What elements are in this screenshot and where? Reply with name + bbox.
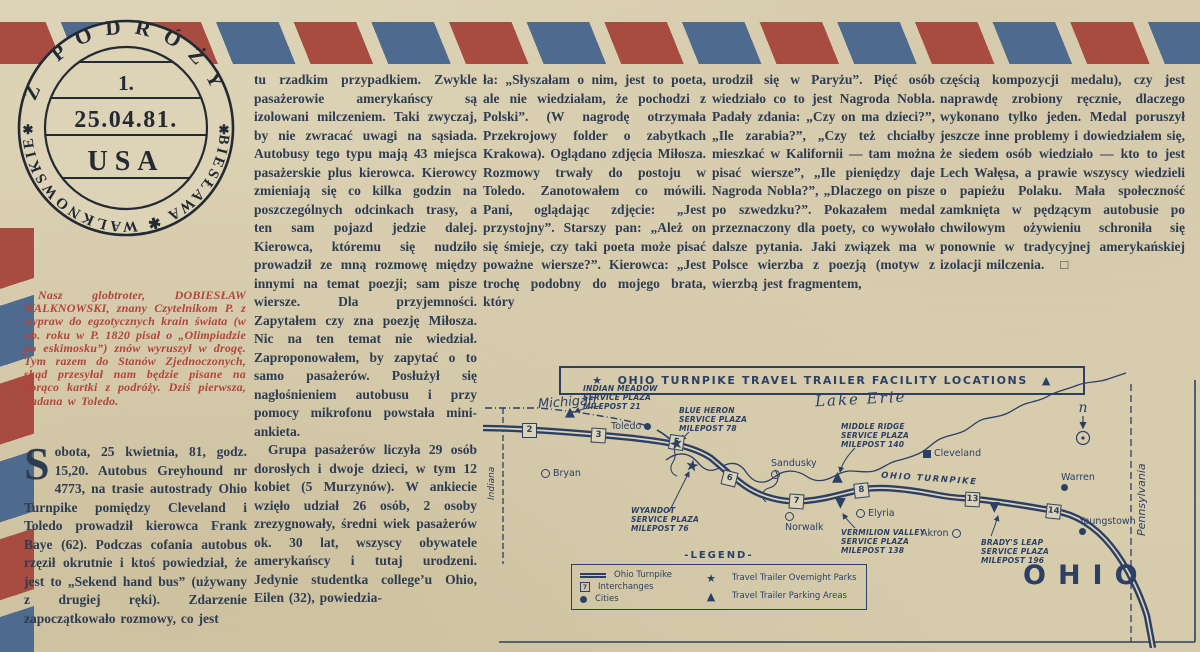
- city-sandusky-label: Sandusky: [771, 458, 817, 469]
- drop-cap: S: [24, 445, 50, 482]
- legend-left-column: Ohio Turnpike 7 Interchanges Cities: [580, 569, 698, 605]
- star-icon: ★: [698, 573, 724, 584]
- city-bryan-dot: [541, 469, 550, 478]
- label-pennsylvania: Pennsylvania: [1135, 463, 1148, 536]
- stamp-date: 25.04.81.: [74, 107, 178, 133]
- turnpike-line-icon: [580, 573, 606, 578]
- bradys-leap-arrow: [991, 516, 998, 536]
- plaza-bradys-leap-line1: BRADY'S LEAP: [981, 538, 1049, 547]
- plaza-bradys-leap-line3: MILEPOST 196: [981, 556, 1049, 565]
- plaza-indian-meadow-line3: MILEPOST 21: [583, 402, 658, 411]
- vermilion-valley-triangle-icon: ▼: [835, 496, 846, 510]
- column-5-text: częścią kompozycji medalu), czy jest nap…: [940, 72, 1185, 272]
- article-column-5: częścią kompozycji medalu), czy jest nap…: [940, 71, 1185, 343]
- city-norwalk: Norwalk: [785, 512, 824, 533]
- stamp-number: 1.: [118, 71, 134, 95]
- city-elyria: Elyria: [856, 508, 895, 519]
- legend-overnight-label: Travel Trailer Overnight Parks: [732, 573, 856, 583]
- interchange-box-icon: 7: [580, 582, 590, 592]
- legend-turnpike-row: Ohio Turnpike: [580, 569, 698, 581]
- article-column-1: Sobota, 25 kwietnia, 81, godz. 15,20. Au…: [24, 443, 247, 652]
- plaza-middle-ridge-line2: SERVICE PLAZA: [841, 431, 909, 440]
- city-cleveland-label: Cleveland: [934, 448, 981, 459]
- bradys-leap-triangle-icon: ▼: [989, 500, 1000, 514]
- city-sandusky: Sandusky: [771, 458, 817, 479]
- city-warren: Warren: [1061, 472, 1095, 491]
- legend-interchanges-row: 7 Interchanges: [580, 581, 698, 593]
- plaza-wyandot-line2: SERVICE PLAZA: [631, 515, 699, 524]
- city-bryan: Bryan: [541, 468, 581, 479]
- interchange-14: 14: [1045, 503, 1061, 519]
- legend-cities-label: Cities: [595, 594, 619, 604]
- plaza-middle-ridge-line3: MILEPOST 140: [841, 440, 909, 449]
- column-4-text: urodził się w Paryżu”. Pięć osób wiedzia…: [712, 71, 935, 293]
- plaza-vermilion-valley-line1: VERMILION VALLEY: [841, 528, 925, 537]
- map-title-text: OHIO TURNPIKE TRAVEL TRAILER FACILITY LO…: [618, 374, 1028, 387]
- article-column-2: tu rzadkim przypadkiem. Zwykle pasażerow…: [254, 71, 477, 652]
- legend-interchanges-label: Interchanges: [598, 582, 653, 592]
- city-akron-dot: [952, 529, 961, 538]
- city-youngstown: Youngstown: [1079, 516, 1136, 535]
- city-sandusky-dot: [771, 470, 780, 479]
- middle-ridge-triangle-icon: ▲: [832, 470, 843, 484]
- wyandot-star-icon: ★: [684, 457, 701, 475]
- interchange-8: 8: [853, 482, 869, 498]
- city-bryan-label: Bryan: [553, 468, 581, 479]
- plaza-bradys-leap-line2: SERVICE PLAZA: [981, 547, 1049, 556]
- column-3-text: ła: „Słyszałam o nim, jest to poeta, ale…: [483, 71, 706, 312]
- label-indiana: Indiana: [487, 467, 497, 500]
- interchange-2: 2: [522, 423, 537, 438]
- turnpike-road: [483, 428, 1153, 648]
- svg-text:n: n: [1078, 400, 1087, 416]
- article-column-4: urodził się w Paryżu”. Pięć osób wiedzia…: [712, 71, 935, 323]
- stamp-country: USA: [87, 146, 164, 177]
- city-toledo-dot: [644, 423, 651, 430]
- city-norwalk-dot: [785, 512, 794, 521]
- plaza-blue-heron: BLUE HERON SERVICE PLAZA MILEPOST 78: [679, 406, 747, 433]
- legend-title: -LEGEND-: [571, 550, 867, 561]
- triangle-icon: ▲: [698, 591, 724, 602]
- interchange-3: 3: [590, 427, 606, 443]
- city-toledo: Toledo: [611, 421, 651, 432]
- city-dot-icon: [580, 596, 587, 603]
- scanned-article-page: Z PODRÓŻY DOBIESŁAWA ✱ WALKNOWSKIEGO ✱ ✱…: [0, 0, 1200, 652]
- column-2-paragraph-1: tu rzadkim przypadkiem. Zwykle pasażerow…: [254, 71, 477, 441]
- legend-turnpike-label: Ohio Turnpike: [614, 570, 672, 580]
- blue-heron-star-icon: ★: [667, 435, 684, 454]
- legend-cities-row: Cities: [580, 593, 698, 605]
- plaza-wyandot-line3: MILEPOST 76: [631, 524, 699, 533]
- indian-meadow-triangle-icon: ▲: [565, 406, 575, 419]
- legend-box: Ohio Turnpike 7 Interchanges Cities ★ Tr…: [571, 564, 867, 610]
- stamp-separator-left: ✱: [23, 122, 34, 137]
- city-toledo-label: Toledo: [611, 421, 641, 432]
- city-warren-dot: [1061, 484, 1068, 491]
- plaza-blue-heron-line1: BLUE HERON: [679, 406, 747, 415]
- plaza-indian-meadow-line1: INDIAN MEADOW: [583, 384, 658, 393]
- stamp-separator-right: ✱: [219, 122, 230, 137]
- north-compass-icon: n: [1077, 400, 1090, 445]
- vermilion-valley-arrow: [843, 514, 855, 528]
- column-1-text: obota, 25 kwietnia, 81, godz. 15,20. Aut…: [24, 444, 247, 626]
- city-elyria-label: Elyria: [868, 508, 895, 519]
- city-akron: Akron: [921, 528, 961, 539]
- article-lead-paragraph: Nasz globtroter, DOBIESŁAW WALKNOWSKI, z…: [24, 289, 246, 441]
- legend-parking-label: Travel Trailer Parking Areas: [732, 591, 847, 601]
- interchange-13: 13: [965, 492, 981, 508]
- plaza-middle-ridge-line1: MIDDLE RIDGE: [841, 422, 909, 431]
- city-youngstown-label: Youngstown: [1079, 516, 1136, 527]
- ohio-turnpike-map: n ★ OHIO TURNPIKE TRAVEL TRAILER FACILIT…: [483, 364, 1197, 648]
- city-youngstown-dot: [1079, 528, 1086, 535]
- title-triangle-icon: ▲: [1042, 374, 1052, 387]
- article-column-3: ła: „Słyszałam o nim, jest to poeta, ale…: [483, 71, 706, 361]
- legend-parking-row: ▲ Travel Trailer Parking Areas: [698, 590, 858, 602]
- city-cleveland-dot: [923, 450, 931, 458]
- column-2-paragraph-2: Grupa pasażerów liczyła 29 osób dorosłyc…: [254, 441, 477, 608]
- turnpike-road-centerline: [483, 428, 1153, 648]
- city-cleveland: Cleveland: [923, 448, 981, 459]
- plaza-bradys-leap: BRADY'S LEAP SERVICE PLAZA MILEPOST 196: [981, 538, 1049, 565]
- interchange-7: 7: [788, 493, 804, 509]
- postmark-stamp: Z PODRÓŻY DOBIESŁAWA ✱ WALKNOWSKIEGO ✱ ✱…: [4, 0, 246, 260]
- plaza-middle-ridge: MIDDLE RIDGE SERVICE PLAZA MILEPOST 140: [841, 422, 909, 449]
- article-end-mark: □: [1060, 256, 1068, 275]
- plaza-vermilion-valley-line2: SERVICE PLAZA: [841, 537, 925, 546]
- plaza-wyandot-line1: WYANDOT: [631, 506, 699, 515]
- legend-right-column: ★ Travel Trailer Overnight Parks ▲ Trave…: [698, 569, 858, 605]
- plaza-indian-meadow-line2: SERVICE PLAZA: [583, 393, 658, 402]
- plaza-indian-meadow: INDIAN MEADOW SERVICE PLAZA MILEPOST 21: [583, 384, 658, 411]
- city-elyria-dot: [856, 509, 865, 518]
- plaza-blue-heron-line2: SERVICE PLAZA: [679, 415, 747, 424]
- plaza-blue-heron-line3: MILEPOST 78: [679, 424, 747, 433]
- legend-overnight-row: ★ Travel Trailer Overnight Parks: [698, 572, 858, 584]
- city-norwalk-label: Norwalk: [785, 522, 824, 533]
- city-warren-label: Warren: [1061, 472, 1095, 483]
- plaza-wyandot: WYANDOT SERVICE PLAZA MILEPOST 76: [631, 506, 699, 533]
